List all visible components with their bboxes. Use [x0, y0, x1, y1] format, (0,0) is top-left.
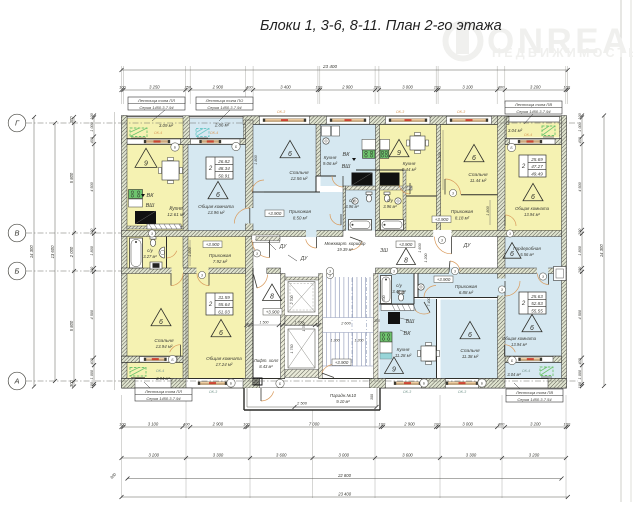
- svg-text:+3.900: +3.900: [206, 242, 220, 247]
- svg-text:2 900: 2 900: [341, 85, 353, 90]
- svg-text:Лестница типа ПВ: Лестница типа ПВ: [514, 102, 552, 107]
- svg-text:400: 400: [578, 357, 582, 364]
- svg-text:1 000: 1 000: [578, 121, 582, 131]
- svg-text:3 700: 3 700: [438, 151, 442, 161]
- svg-text:ОК-3: ОК-3: [458, 390, 467, 394]
- svg-text:Лестница типа ПЛ: Лестница типа ПЛ: [144, 389, 182, 394]
- svg-text:+3.900: +3.900: [268, 211, 282, 216]
- svg-text:100: 100: [563, 85, 570, 90]
- svg-text:ОК-3: ОК-3: [277, 110, 286, 114]
- svg-text:22 800: 22 800: [337, 473, 351, 478]
- svg-text:3.27 м²: 3.27 м²: [143, 254, 157, 259]
- svg-text:6: 6: [216, 192, 220, 199]
- svg-text:12.61 м²: 12.61 м²: [167, 212, 185, 217]
- svg-text:+3.900: +3.900: [399, 242, 413, 247]
- svg-text:3 000: 3 000: [339, 453, 350, 458]
- svg-text:25.63: 25.63: [530, 294, 543, 299]
- svg-text:3.46 м²: 3.46 м²: [392, 289, 406, 294]
- svg-text:100: 100: [564, 422, 571, 427]
- svg-text:3 600: 3 600: [402, 453, 413, 458]
- svg-text:+3.900: +3.900: [437, 277, 451, 282]
- svg-text:100: 100: [379, 422, 386, 427]
- svg-text:13 600: 13 600: [50, 245, 55, 258]
- svg-text:2: 2: [521, 301, 526, 307]
- svg-text:9: 9: [392, 366, 396, 373]
- svg-text:3.96 м²: 3.96 м²: [383, 204, 397, 209]
- svg-text:2: 2: [208, 302, 213, 308]
- svg-text:3.04 м²: 3.04 м²: [508, 128, 523, 133]
- svg-text:400: 400: [183, 422, 190, 427]
- svg-text:+3.900: +3.900: [335, 360, 349, 365]
- svg-text:3 000: 3 000: [462, 422, 473, 427]
- svg-text:Прихожая: Прихожая: [451, 209, 474, 215]
- svg-text:+3.900: +3.900: [435, 217, 449, 222]
- svg-text:8.18 м²: 8.18 м²: [455, 216, 470, 221]
- svg-text:48.34: 48.34: [218, 166, 230, 171]
- svg-text:ВК: ВК: [343, 152, 351, 158]
- svg-text:Лестница типа ПВ: Лестница типа ПВ: [515, 390, 553, 395]
- svg-text:8: 8: [270, 293, 274, 300]
- svg-text:с/у: с/у: [387, 198, 394, 203]
- svg-text:2 700: 2 700: [290, 296, 294, 306]
- svg-text:1 700: 1 700: [302, 323, 306, 332]
- svg-text:2: 2: [208, 166, 213, 172]
- svg-text:1 600: 1 600: [418, 242, 422, 252]
- svg-text:2 900: 2 900: [212, 422, 224, 427]
- svg-text:Общая комната: Общая комната: [502, 336, 537, 341]
- svg-text:5 800: 5 800: [69, 172, 74, 183]
- svg-text:9.06 м²: 9.06 м²: [323, 161, 338, 166]
- svg-text:3 200: 3 200: [530, 85, 541, 90]
- svg-text:11.44 м²: 11.44 м²: [470, 178, 487, 183]
- svg-text:400: 400: [498, 422, 505, 427]
- svg-text:100: 100: [90, 112, 94, 119]
- svg-text:3 300: 3 300: [213, 453, 224, 458]
- svg-text:Блоки 1, 3-6, 8-11. План 2: Блоки 1, 3-6, 8-11. План 2-го этажа: [260, 18, 502, 34]
- svg-text:ВК: ВК: [147, 193, 155, 199]
- svg-text:5.56 м²: 5.56 м²: [520, 252, 534, 257]
- svg-text:250: 250: [183, 85, 191, 90]
- svg-text:Серия 1450.3-7.94: Серия 1450.3-7.94: [139, 105, 174, 110]
- svg-text:3.09 м²: 3.09 м²: [159, 123, 174, 128]
- svg-text:25.69: 25.69: [530, 157, 543, 162]
- svg-text:6: 6: [510, 251, 514, 258]
- svg-text:100: 100: [434, 422, 441, 427]
- svg-text:9: 9: [397, 150, 401, 157]
- svg-text:300: 300: [69, 380, 74, 388]
- svg-text:ОК-3: ОК-3: [209, 390, 218, 394]
- svg-text:Лифт. холл: Лифт. холл: [253, 358, 279, 363]
- svg-text:11.28 м²: 11.28 м²: [395, 353, 412, 358]
- svg-text:200: 200: [578, 228, 582, 236]
- svg-text:23 400: 23 400: [337, 492, 351, 497]
- svg-text:ОК-3: ОК-3: [403, 390, 412, 394]
- svg-text:ОК-4: ОК-4: [524, 133, 533, 137]
- svg-text:1 800: 1 800: [254, 154, 258, 164]
- svg-text:52.83: 52.83: [531, 301, 543, 306]
- svg-text:3.04 м²: 3.04 м²: [507, 372, 521, 377]
- svg-text:9: 9: [144, 160, 148, 167]
- svg-text:1 200: 1 200: [355, 339, 364, 343]
- svg-text:ДУ: ДУ: [300, 256, 309, 262]
- svg-text:6: 6: [472, 155, 476, 162]
- svg-text:ВШ: ВШ: [342, 164, 352, 170]
- svg-text:23 400: 23 400: [322, 64, 337, 69]
- svg-text:31.59: 31.59: [218, 295, 230, 300]
- svg-text:1 000: 1 000: [578, 369, 582, 379]
- svg-text:Серия 1450.3-7.94: Серия 1450.3-7.94: [516, 109, 551, 114]
- svg-text:100: 100: [434, 85, 441, 90]
- svg-text:3.96 м²: 3.96 м²: [345, 204, 359, 209]
- svg-text:3 100: 3 100: [148, 422, 159, 427]
- svg-text:1 200: 1 200: [331, 339, 340, 343]
- svg-text:400: 400: [246, 85, 253, 90]
- svg-text:4 500: 4 500: [578, 309, 582, 319]
- svg-text:4 500: 4 500: [90, 181, 94, 191]
- svg-text:14 300: 14 300: [599, 244, 604, 257]
- svg-text:13.94 м²: 13.94 м²: [156, 344, 173, 349]
- svg-text:8.43 м²: 8.43 м²: [259, 364, 273, 369]
- svg-text:300: 300: [69, 116, 74, 124]
- svg-text:19.39 м²: 19.39 м²: [337, 247, 354, 252]
- svg-text:3 600: 3 600: [276, 453, 287, 458]
- svg-text:6: 6: [159, 319, 163, 326]
- svg-text:12.56 м²: 12.56 м²: [291, 176, 308, 181]
- svg-text:ОК-3: ОК-3: [457, 110, 466, 114]
- svg-text:Общая комната: Общая комната: [198, 204, 234, 209]
- svg-text:1 750: 1 750: [290, 345, 294, 354]
- svg-text:2 900: 2 900: [403, 422, 415, 427]
- svg-text:13.96 м²: 13.96 м²: [208, 210, 225, 215]
- svg-text:14 300: 14 300: [29, 245, 34, 258]
- svg-text:200: 200: [578, 266, 582, 274]
- svg-text:400: 400: [90, 357, 94, 364]
- svg-text:6.88 м²: 6.88 м²: [459, 290, 474, 295]
- svg-text:100: 100: [316, 85, 323, 90]
- svg-text:100: 100: [119, 422, 126, 427]
- svg-text:1 500: 1 500: [260, 321, 269, 325]
- svg-text:ЗШ: ЗШ: [380, 248, 388, 254]
- svg-text:с/у: с/у: [396, 283, 403, 288]
- svg-text:ВШ: ВШ: [146, 203, 156, 209]
- svg-text:2.94 м²: 2.94 м²: [155, 376, 170, 381]
- svg-text:3 200: 3 200: [149, 453, 160, 458]
- svg-text:Прихожая: Прихожая: [289, 209, 312, 215]
- svg-text:4 500: 4 500: [578, 181, 582, 191]
- svg-text:А: А: [13, 377, 19, 386]
- svg-text:100: 100: [578, 381, 582, 388]
- svg-text:400: 400: [498, 85, 505, 90]
- svg-text:ДУ: ДУ: [463, 243, 472, 249]
- svg-text:Парадн.№10: Парадн.№10: [330, 393, 357, 398]
- svg-text:3 000: 3 000: [402, 85, 413, 90]
- svg-text:2 500: 2 500: [296, 401, 308, 406]
- svg-text:7.92 м²: 7.92 м²: [213, 259, 228, 264]
- svg-text:с/у: с/у: [349, 198, 356, 203]
- svg-text:8.50 м²: 8.50 м²: [293, 216, 308, 221]
- svg-text:4 500: 4 500: [90, 309, 94, 319]
- svg-text:100: 100: [578, 112, 582, 119]
- svg-text:6: 6: [219, 330, 223, 337]
- svg-text:200: 200: [90, 266, 94, 274]
- svg-text:Общая комната: Общая комната: [206, 356, 242, 361]
- svg-text:26.82: 26.82: [217, 159, 230, 164]
- svg-text:2: 2: [521, 164, 526, 170]
- svg-text:Б: Б: [15, 267, 20, 276]
- svg-text:3 400: 3 400: [280, 85, 291, 90]
- svg-text:НЕДВИЖИМОСТЬ: НЕДВИЖИМОСТЬ: [492, 46, 633, 60]
- svg-text:1 000: 1 000: [90, 369, 94, 379]
- svg-text:11.38 м²: 11.38 м²: [462, 354, 479, 359]
- svg-text:3 200: 3 200: [530, 422, 541, 427]
- svg-text:6: 6: [531, 194, 535, 201]
- svg-text:100: 100: [243, 422, 250, 427]
- svg-text:6: 6: [288, 151, 292, 158]
- svg-text:9.10 м²: 9.10 м²: [336, 399, 350, 404]
- svg-text:100: 100: [90, 381, 94, 388]
- svg-text:3 300: 3 300: [466, 453, 477, 458]
- svg-text:Серия 1450.3-7.54: Серия 1450.3-7.54: [517, 397, 552, 402]
- svg-text:3 250: 3 250: [149, 85, 160, 90]
- svg-text:13.94 м²: 13.94 м²: [524, 212, 541, 217]
- svg-text:6: 6: [468, 332, 472, 339]
- svg-text:с/у: с/у: [147, 248, 154, 253]
- svg-text:1 000: 1 000: [90, 121, 94, 131]
- svg-text:400: 400: [578, 136, 582, 143]
- svg-text:8: 8: [404, 257, 408, 264]
- svg-text:3 200: 3 200: [529, 453, 540, 458]
- svg-text:Лестница типа ПО: Лестница типа ПО: [205, 98, 243, 103]
- svg-text:5 800: 5 800: [69, 320, 74, 331]
- svg-text:200: 200: [373, 85, 381, 90]
- svg-text:1 800: 1 800: [486, 205, 490, 215]
- svg-text:400: 400: [90, 136, 94, 143]
- svg-text:49.49: 49.49: [531, 172, 543, 177]
- svg-text:1 800: 1 800: [90, 245, 94, 255]
- svg-text:55.64: 55.64: [218, 302, 230, 307]
- svg-text:7 400: 7 400: [427, 298, 431, 307]
- svg-text:Межкварт. коридор: Межкварт. коридор: [325, 241, 367, 246]
- svg-text:ДУ: ДУ: [279, 244, 288, 250]
- svg-text:Лестница типа ПЛ: Лестница типа ПЛ: [137, 98, 175, 103]
- svg-text:47.27: 47.27: [531, 164, 543, 169]
- svg-text:300: 300: [374, 319, 380, 323]
- svg-text:2 600: 2 600: [340, 322, 351, 326]
- svg-text:ОК-4: ОК-4: [210, 131, 219, 135]
- svg-text:2 900: 2 900: [212, 85, 224, 90]
- svg-text:300: 300: [370, 394, 374, 400]
- svg-text:9.44 м²: 9.44 м²: [402, 167, 417, 172]
- svg-text:+3.900: +3.900: [266, 310, 280, 315]
- svg-text:61.03: 61.03: [218, 310, 230, 315]
- svg-text:ОК-4: ОК-4: [156, 369, 165, 373]
- svg-text:17.24 м²: 17.24 м²: [216, 362, 233, 367]
- svg-text:55.55: 55.55: [531, 309, 543, 314]
- svg-text:Серия 1450.3-7.94: Серия 1450.3-7.94: [146, 396, 181, 401]
- svg-text:ОК-4: ОК-4: [154, 131, 163, 135]
- svg-text:7 000: 7 000: [309, 422, 320, 427]
- svg-text:2 000: 2 000: [69, 246, 74, 258]
- svg-text:Серия 1450.3-7.94: Серия 1450.3-7.94: [207, 105, 242, 110]
- svg-text:ОК-3: ОК-3: [396, 110, 405, 114]
- svg-text:6: 6: [530, 325, 534, 332]
- svg-text:13.94 м²: 13.94 м²: [511, 342, 528, 347]
- svg-text:1 700: 1 700: [382, 296, 386, 305]
- svg-text:1 800: 1 800: [578, 245, 582, 255]
- svg-text:50.91: 50.91: [218, 174, 230, 179]
- svg-text:1 200: 1 200: [424, 254, 428, 263]
- svg-text:3 100: 3 100: [462, 85, 473, 90]
- svg-text:В: В: [14, 229, 19, 238]
- svg-text:Общая комната: Общая комната: [515, 206, 550, 211]
- svg-text:100: 100: [119, 85, 126, 90]
- svg-text:Гардеробная: Гардеробная: [513, 246, 541, 251]
- svg-text:200: 200: [90, 228, 94, 236]
- svg-text:ОК-4: ОК-4: [522, 369, 531, 373]
